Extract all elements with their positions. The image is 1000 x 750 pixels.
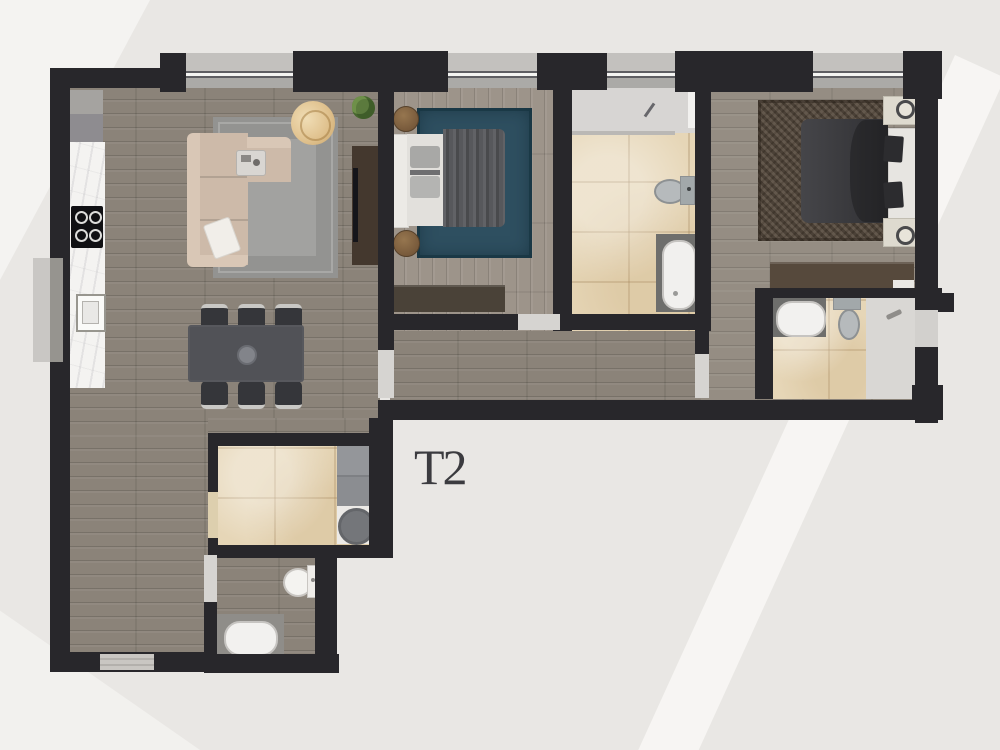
- wall-laundry-bottom: [208, 545, 369, 558]
- dining-chair: [201, 381, 228, 409]
- tv-icon: [353, 168, 358, 242]
- sofa-backrest: [187, 133, 200, 265]
- floor-plan-canvas: T2: [0, 0, 1000, 750]
- wall-hallway-master: [695, 329, 709, 354]
- bed2-duvet-fold: [850, 120, 888, 222]
- wall-bathroom1-bedroom2: [695, 88, 711, 331]
- facade-pier: [293, 51, 448, 92]
- bed1-duvet: [443, 129, 505, 227]
- door-wc: [204, 555, 217, 602]
- wall-right-upper: [915, 66, 938, 310]
- kitchen-cabinet-top: [70, 90, 103, 114]
- bed1-nightstand: [393, 230, 420, 257]
- coffee-table-tray: [241, 155, 251, 162]
- bathroom2-toilet-bowl: [838, 309, 860, 340]
- toilet-flush-icon: [687, 187, 691, 191]
- bed2-pillow: [883, 181, 904, 208]
- lamp-icon: [896, 100, 915, 119]
- dining-chair: [275, 381, 302, 409]
- dryer: [337, 477, 369, 506]
- bed1-pillow: [410, 176, 440, 198]
- washer: [337, 444, 369, 477]
- dining-chair: [238, 381, 265, 409]
- facade-pier: [160, 53, 186, 92]
- bathroom2-bathtub: [776, 301, 826, 337]
- bed1-nightstand: [393, 106, 419, 132]
- wall-hallway-bottom: [378, 400, 943, 420]
- door-master-suite: [695, 354, 709, 398]
- living-room-floor-lower: [68, 435, 208, 654]
- burner-icon: [89, 211, 102, 224]
- facade-pier: [537, 53, 607, 90]
- door-right-wall: [915, 310, 938, 347]
- sofa-chaise-back: [247, 137, 291, 148]
- exterior-ledge: [33, 258, 50, 362]
- unit-type-label: T2: [414, 442, 466, 492]
- entrance-door: [100, 654, 154, 670]
- wall-top-left: [50, 68, 162, 88]
- kitchen-counter: [68, 142, 105, 388]
- bathroom2-shower-floor: [866, 296, 916, 399]
- bathroom1-bathtub: [662, 240, 696, 310]
- lamp-icon: [896, 226, 915, 245]
- kitchen-sink-basin: [82, 301, 99, 324]
- wall-left: [50, 78, 70, 670]
- wall-laundry-left-a: [208, 446, 218, 492]
- wall-hallway-top-b: [560, 314, 695, 330]
- wall-wc-bottom: [204, 654, 339, 673]
- tub-drain-icon: [673, 291, 678, 296]
- wall-bedroom1-bathroom1: [553, 88, 572, 331]
- table-centerpiece: [237, 345, 257, 365]
- bed1-throw: [410, 170, 440, 175]
- bathroom2-toilet-tank: [833, 297, 861, 310]
- coffee-table-decor: [253, 159, 260, 166]
- kitchen-cabinet: [70, 114, 103, 142]
- lounge-chair-cushion: [300, 110, 331, 141]
- exterior-ledge-inner: [50, 258, 63, 362]
- wall-hallway-top-a: [392, 314, 518, 330]
- plant-icon: [352, 96, 375, 119]
- burner-icon: [75, 211, 88, 224]
- wc-bathtub: [224, 621, 278, 656]
- wall-bathroom2-top: [755, 288, 942, 298]
- bathroom1-counter-edge: [572, 131, 675, 135]
- wall-wc-right: [315, 552, 337, 670]
- burner-icon: [89, 229, 102, 242]
- door-bedroom1: [518, 314, 560, 330]
- wall-laundry-top: [208, 433, 387, 446]
- facade-pier: [675, 51, 813, 92]
- bed1-pillow: [410, 146, 440, 168]
- door-living-hallway: [378, 350, 394, 398]
- wall-bathroom2-left: [755, 295, 773, 399]
- bathroom1-vanity-zone: [570, 88, 697, 135]
- bedroom1-dresser: [393, 285, 505, 312]
- sofa-seam: [200, 176, 248, 178]
- coffee-table: [236, 150, 266, 176]
- burner-icon: [75, 229, 88, 242]
- wall-laundry-right-exterior: [369, 418, 393, 558]
- bed2-pillow: [883, 135, 904, 162]
- door-laundry: [208, 492, 218, 538]
- wall-living-bedroom1: [378, 88, 394, 352]
